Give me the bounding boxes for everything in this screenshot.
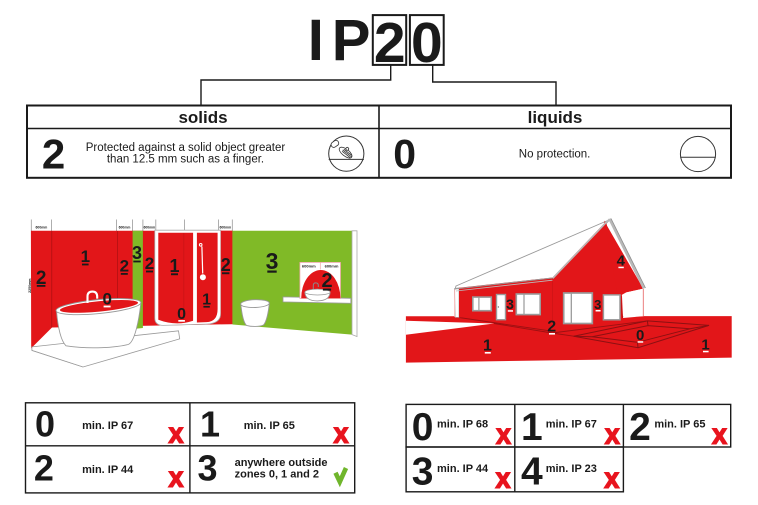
svg-text:X: X	[496, 426, 510, 449]
svg-text:3: 3	[198, 447, 218, 488]
svg-text:min. IP 44: min. IP 44	[437, 463, 489, 475]
svg-text:zones 0, 1 and 2: zones 0, 1 and 2	[235, 469, 319, 481]
svg-text:2: 2	[374, 11, 406, 75]
svg-text:600mm: 600mm	[302, 263, 316, 268]
svg-text:than 12.5 mm such as a finger.: than 12.5 mm such as a finger.	[107, 154, 264, 166]
svg-text:1: 1	[521, 406, 543, 449]
svg-text:1: 1	[81, 247, 90, 266]
svg-text:min. IP 65: min. IP 65	[244, 420, 295, 432]
svg-text:X: X	[169, 425, 183, 448]
svg-text:2: 2	[221, 255, 231, 275]
svg-text:0: 0	[412, 406, 434, 449]
svg-text:X: X	[334, 425, 348, 448]
svg-text:min. IP 65: min. IP 65	[654, 419, 705, 431]
svg-text:600mm: 600mm	[143, 226, 155, 230]
svg-text:min. IP 67: min. IP 67	[82, 420, 133, 432]
svg-text:IP: IP	[308, 8, 379, 73]
svg-text:3: 3	[132, 243, 142, 263]
svg-text:0: 0	[411, 11, 443, 75]
svg-text:X: X	[712, 426, 726, 449]
svg-text:0: 0	[102, 289, 111, 308]
svg-text:1: 1	[200, 404, 220, 445]
svg-text:0: 0	[393, 131, 416, 177]
svg-text:2: 2	[34, 447, 54, 488]
svg-text:600mm: 600mm	[325, 263, 339, 268]
svg-text:liquids: liquids	[528, 108, 583, 127]
svg-text:min. IP 67: min. IP 67	[546, 419, 597, 431]
svg-text:0: 0	[35, 404, 55, 445]
svg-text:No protection.: No protection.	[519, 149, 591, 161]
svg-text:Protected against a solid obje: Protected against a solid object greater	[86, 142, 286, 154]
svg-text:3: 3	[266, 248, 279, 274]
svg-text:X: X	[605, 470, 619, 493]
svg-text:3: 3	[506, 296, 514, 312]
svg-text:X: X	[169, 468, 183, 491]
svg-text:3: 3	[412, 451, 434, 494]
svg-text:min. IP 44: min. IP 44	[82, 464, 134, 476]
svg-text:solids: solids	[178, 108, 227, 127]
svg-text:4: 4	[521, 451, 543, 494]
svg-text:min. IP 23: min. IP 23	[546, 463, 597, 475]
svg-text:X: X	[605, 426, 619, 449]
svg-text:X: X	[496, 470, 510, 493]
svg-text:600mm: 600mm	[36, 226, 48, 230]
svg-text:2: 2	[145, 254, 154, 273]
svg-text:600mm: 600mm	[119, 226, 131, 230]
svg-text:2: 2	[120, 257, 129, 276]
svg-text:3: 3	[594, 297, 601, 312]
svg-text:2: 2	[42, 131, 65, 178]
svg-text:600mm: 600mm	[219, 226, 231, 230]
svg-text:2: 2	[629, 406, 651, 449]
svg-text:anywhere outside: anywhere outside	[235, 457, 328, 469]
svg-text:min. IP 68: min. IP 68	[437, 419, 488, 431]
svg-text:1: 1	[169, 256, 179, 276]
